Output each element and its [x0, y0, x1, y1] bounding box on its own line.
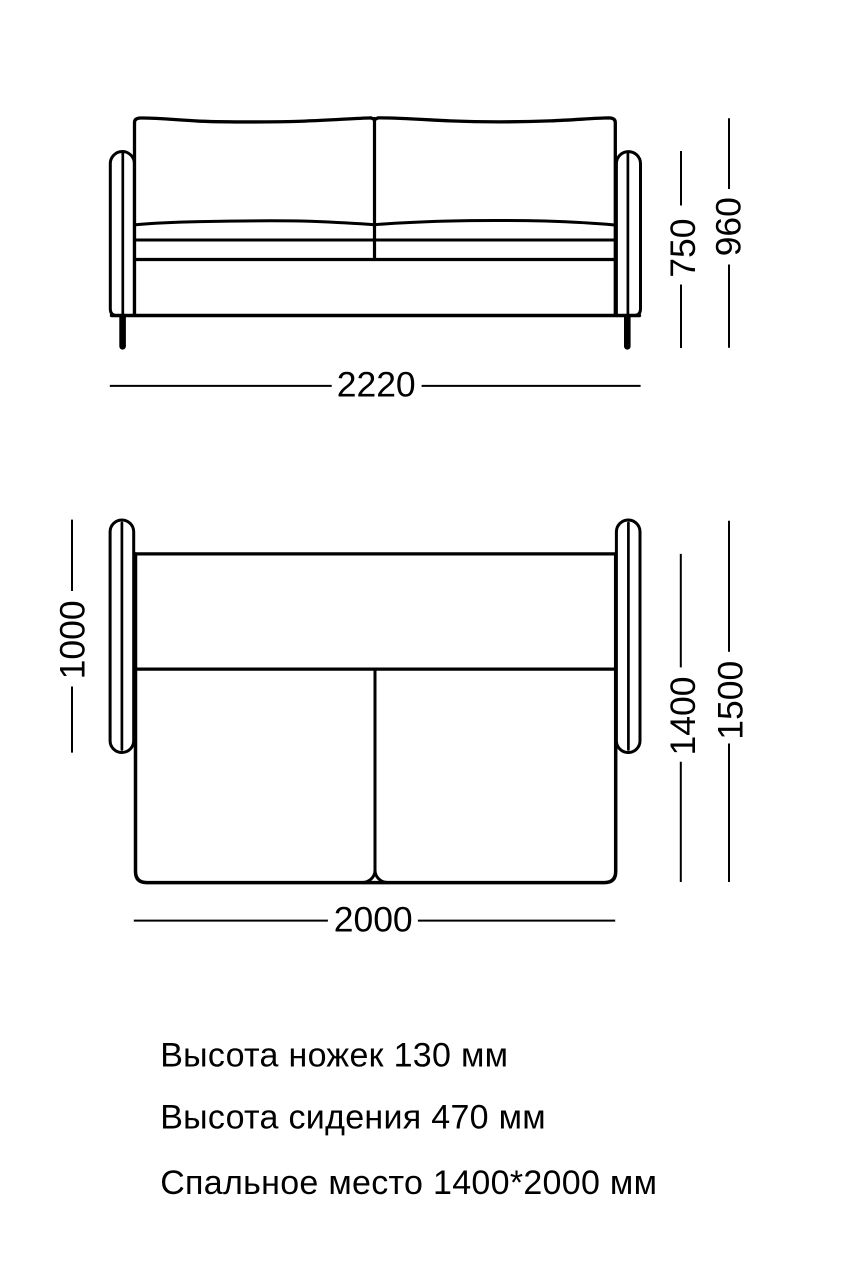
- svg-text:2000: 2000: [334, 899, 413, 939]
- svg-text:Высота сидения 470 мм: Высота сидения 470 мм: [160, 1098, 546, 1136]
- svg-text:2220: 2220: [337, 365, 416, 405]
- svg-text:1000: 1000: [52, 600, 92, 679]
- svg-text:1400: 1400: [663, 677, 703, 756]
- svg-text:Спальное место 1400*2000 мм: Спальное место 1400*2000 мм: [160, 1164, 657, 1202]
- svg-text:750: 750: [663, 218, 703, 277]
- svg-text:1500: 1500: [711, 661, 751, 740]
- svg-text:Высота ножек 130 мм: Высота ножек 130 мм: [160, 1037, 508, 1075]
- svg-text:960: 960: [708, 197, 748, 256]
